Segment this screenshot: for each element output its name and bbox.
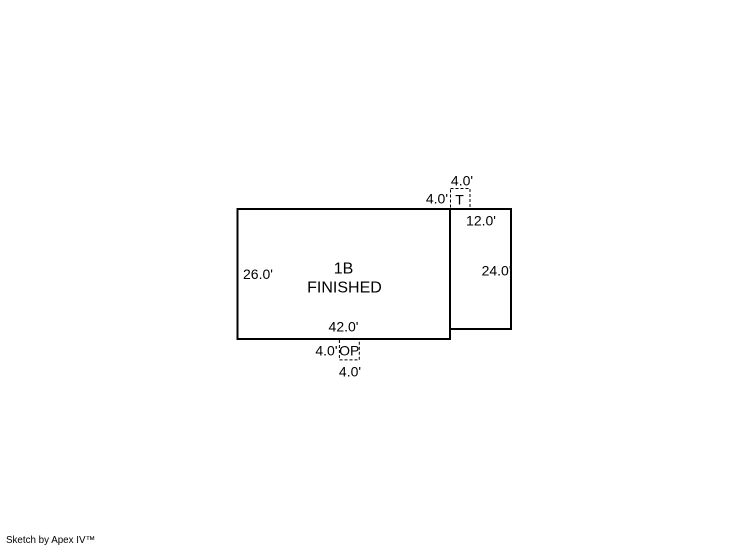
svg-text:12.0': 12.0' — [466, 213, 496, 229]
svg-text:Sketch by Apex IV™: Sketch by Apex IV™ — [6, 535, 95, 546]
svg-text:OP: OP — [339, 343, 359, 359]
svg-text:1B: 1B — [334, 261, 354, 278]
svg-text:4.0': 4.0' — [451, 173, 473, 189]
svg-text:24.0': 24.0' — [482, 263, 512, 279]
svg-text:26.0': 26.0' — [243, 266, 273, 282]
svg-text:FINISHED: FINISHED — [307, 280, 382, 297]
svg-text:4.0': 4.0' — [315, 343, 337, 359]
svg-text:T: T — [455, 192, 464, 208]
svg-text:4.0': 4.0' — [339, 364, 361, 380]
svg-text:4.0': 4.0' — [426, 191, 448, 207]
svg-text:42.0': 42.0' — [329, 319, 359, 335]
